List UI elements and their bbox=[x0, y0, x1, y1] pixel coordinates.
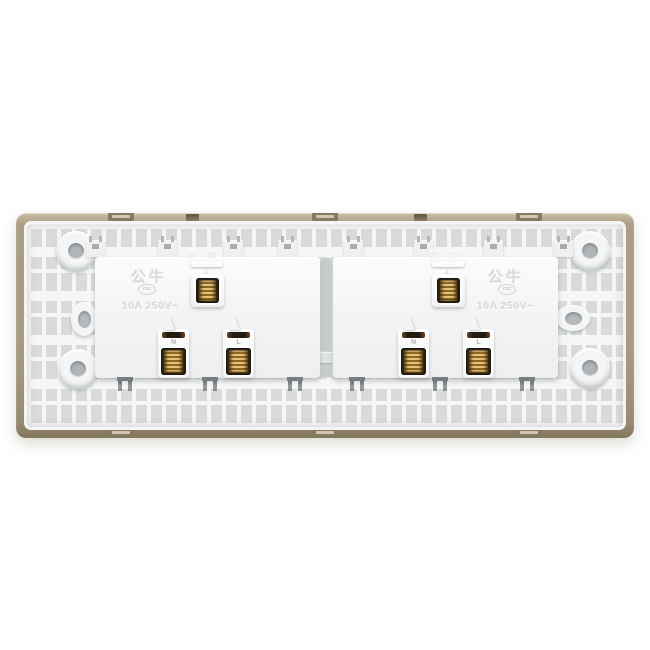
screw-boss-bottom-right bbox=[570, 348, 610, 388]
frame-notch-top-center bbox=[312, 213, 338, 221]
live-wire-slot bbox=[467, 332, 490, 338]
screw-boss-top-right bbox=[570, 231, 610, 271]
panel-clip bbox=[86, 240, 105, 257]
earth-wire-slot bbox=[191, 261, 223, 267]
earth-terminal bbox=[191, 274, 224, 307]
module-tab bbox=[188, 250, 196, 258]
frame-notch-bottom-left bbox=[108, 429, 134, 437]
neutral-terminal-screw bbox=[161, 348, 186, 375]
metal-wire-clip bbox=[117, 377, 133, 391]
frame-notch-bottom-center bbox=[312, 429, 338, 437]
earth-terminal bbox=[432, 274, 465, 307]
module-tab bbox=[450, 250, 458, 258]
rating-text: 10A 250V~ bbox=[477, 300, 534, 312]
earth-terminal-screw bbox=[437, 278, 460, 303]
panel-clip bbox=[158, 240, 177, 257]
product-photo: 公牛 ccc 10A 250V~ ⏚ N L bbox=[0, 0, 650, 650]
screw-boss-bottom-left bbox=[58, 349, 98, 389]
wire-release-tip bbox=[228, 316, 240, 330]
live-label: L bbox=[463, 339, 494, 346]
socket-back-plate: 公牛 ccc 10A 250V~ ⏚ N L bbox=[16, 213, 634, 438]
module-tab bbox=[208, 250, 216, 258]
wire-release-tip bbox=[163, 316, 175, 330]
neutral-label: N bbox=[398, 339, 429, 346]
rating-text: 10A 250V~ bbox=[122, 300, 179, 312]
metal-wire-clip bbox=[202, 377, 218, 391]
live-terminal: L bbox=[223, 329, 254, 378]
metal-wire-clip bbox=[287, 377, 303, 391]
module-gap-divider bbox=[318, 353, 334, 363]
frame-notch-top-left bbox=[108, 213, 134, 221]
ccc-certification-mark: ccc bbox=[498, 284, 516, 295]
ccc-certification-mark: ccc bbox=[138, 284, 156, 295]
frame-notch-top-right bbox=[516, 213, 542, 221]
wire-release-tip bbox=[403, 316, 415, 330]
frame-pin-left bbox=[186, 214, 199, 221]
live-terminal-screw bbox=[226, 348, 251, 375]
panel-clip bbox=[484, 240, 503, 257]
metal-wire-clip bbox=[432, 377, 448, 391]
neutral-wire-slot bbox=[162, 332, 185, 338]
live-wire-slot bbox=[227, 332, 250, 338]
module-tab bbox=[430, 250, 438, 258]
panel-clip bbox=[554, 240, 573, 257]
live-terminal: L bbox=[463, 329, 494, 378]
panel-clip bbox=[344, 240, 363, 257]
neutral-terminal: N bbox=[158, 329, 189, 378]
neutral-terminal: N bbox=[398, 329, 429, 378]
mounting-oval-left bbox=[71, 302, 97, 336]
panel-clip bbox=[224, 240, 243, 257]
live-label: L bbox=[223, 339, 254, 346]
wire-release-tip bbox=[468, 316, 480, 330]
metal-wire-clip bbox=[519, 377, 535, 391]
panel-clip bbox=[278, 240, 297, 257]
mounting-oval-right bbox=[556, 305, 590, 331]
frame-pin-right bbox=[414, 214, 427, 221]
earth-terminal-screw bbox=[196, 278, 219, 303]
neutral-wire-slot bbox=[402, 332, 425, 338]
earth-wire-slot bbox=[432, 261, 464, 267]
module-gap-channel bbox=[318, 258, 334, 377]
metal-wire-clip bbox=[349, 377, 365, 391]
socket-module-left: 公牛 ccc 10A 250V~ ⏚ N L bbox=[95, 257, 320, 378]
neutral-terminal-screw bbox=[401, 348, 426, 375]
neutral-label: N bbox=[158, 339, 189, 346]
frame-notch-bottom-right bbox=[516, 429, 542, 437]
live-terminal-screw bbox=[466, 348, 491, 375]
socket-module-right: 公牛 ccc 10A 250V~ ⏚ N L bbox=[333, 257, 558, 378]
